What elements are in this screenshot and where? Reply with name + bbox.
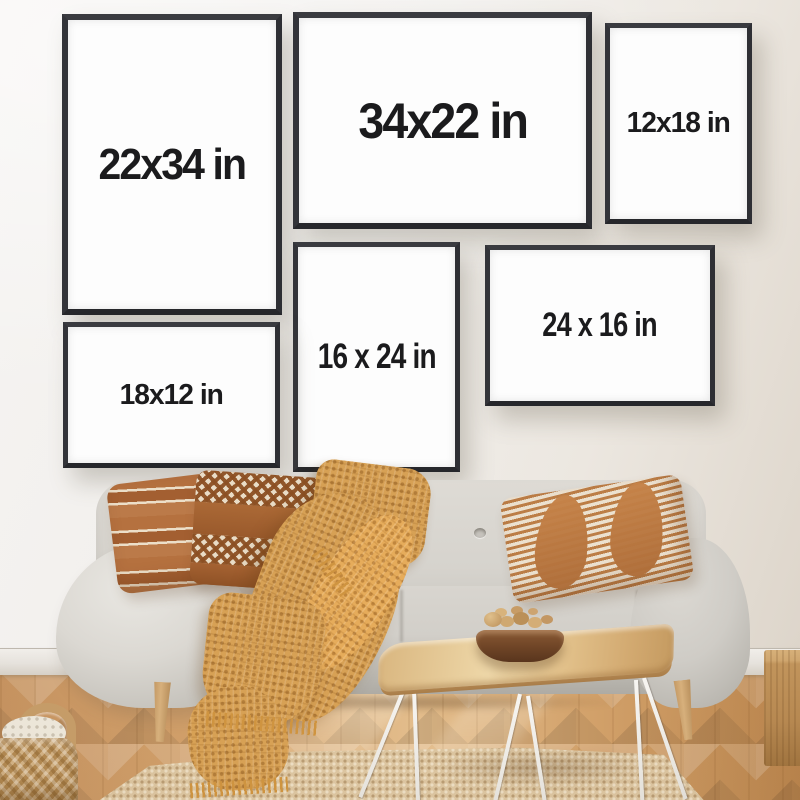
pillow-leaf-shape	[531, 492, 593, 591]
walnuts-in-bowl	[484, 612, 502, 627]
living-room-frame-size-mockup: 22x34 in 34x22 in 12x18 in 16 x 24 in 24…	[0, 0, 800, 800]
frame-size-label: 24 x 16 in	[543, 306, 657, 345]
frame-22x34-portrait: 22x34 in	[62, 14, 282, 315]
frame-12x18-portrait: 12x18 in	[605, 23, 752, 224]
frame-size-label: 22x34 in	[99, 140, 246, 190]
frame-34x22-landscape: 34x22 in	[293, 12, 592, 229]
frame-size-label: 12x18 in	[627, 107, 730, 140]
frame-24x16-landscape: 24 x 16 in	[485, 245, 715, 406]
frame-18x12-landscape: 18x12 in	[63, 322, 280, 468]
sofa-seat-seam	[400, 590, 403, 642]
sofa-tufting-button	[474, 528, 486, 538]
woven-basket	[0, 700, 88, 800]
basket-body	[0, 738, 78, 800]
frame-size-label: 18x12 in	[120, 379, 223, 412]
frame-size-label: 34x22 in	[358, 92, 527, 150]
frame-size-label: 16 x 24 in	[317, 337, 435, 377]
frame-16x24-portrait: 16 x 24 in	[293, 242, 460, 472]
wood-cube-stool	[764, 650, 800, 766]
pillow-leaf-shape	[608, 481, 666, 578]
